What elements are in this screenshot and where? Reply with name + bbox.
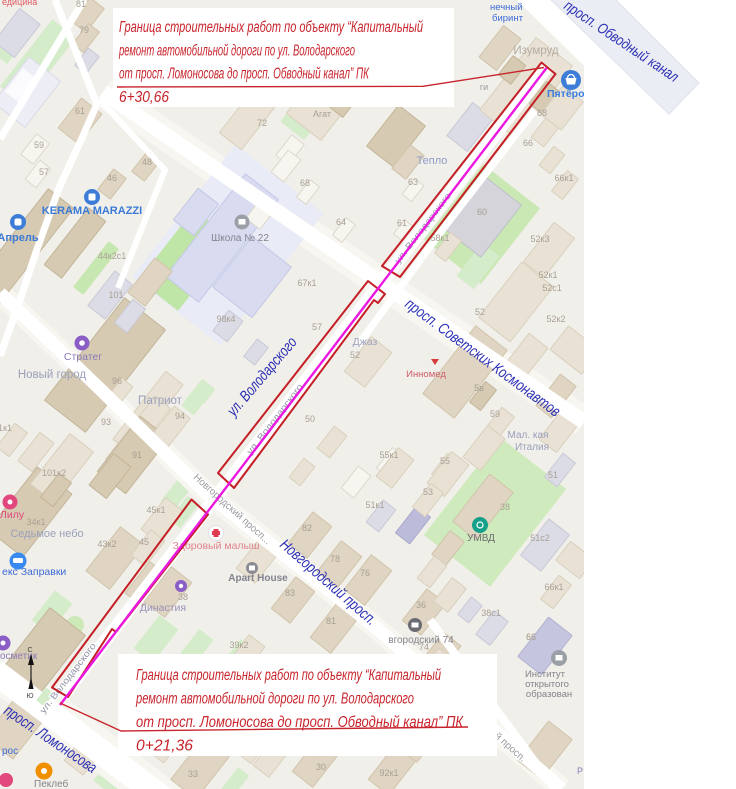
svg-text:44к2с1: 44к2с1 xyxy=(98,251,126,261)
svg-text:Патриот: Патриот xyxy=(138,395,183,407)
svg-text:Пятёроч: Пятёроч xyxy=(547,88,590,100)
svg-text:5в: 5в xyxy=(474,383,484,393)
svg-text:С: С xyxy=(27,647,32,654)
svg-text:1к1: 1к1 xyxy=(0,423,12,433)
svg-text:образован: образован xyxy=(526,689,572,700)
svg-text:30: 30 xyxy=(316,762,326,772)
svg-text:92к1: 92к1 xyxy=(380,768,399,778)
svg-text:вгородский 74: вгородский 74 xyxy=(388,635,454,646)
svg-text:0+21,36: 0+21,36 xyxy=(136,738,193,755)
svg-text:38: 38 xyxy=(500,502,510,512)
svg-text:биринт: биринт xyxy=(492,13,524,24)
svg-text:51: 51 xyxy=(548,470,558,480)
svg-text:101: 101 xyxy=(108,290,123,300)
svg-text:52к2: 52к2 xyxy=(547,314,566,324)
svg-text:98к4: 98к4 xyxy=(217,314,236,324)
svg-text:48: 48 xyxy=(142,157,152,167)
svg-text:60: 60 xyxy=(477,207,487,217)
svg-text:52: 52 xyxy=(475,307,485,317)
svg-text:96: 96 xyxy=(112,376,122,386)
svg-text:Мал. кая: Мал. кая xyxy=(508,430,549,441)
svg-text:Седьмое небо: Седьмое небо xyxy=(10,528,83,540)
svg-text:38: 38 xyxy=(178,592,188,602)
svg-text:63: 63 xyxy=(408,177,418,187)
svg-text:Апрель: Апрель xyxy=(0,232,39,244)
svg-text:ремонт автомобильной дороги по: ремонт автомобильной дороги по ул. Волод… xyxy=(135,691,414,708)
svg-text:45к1: 45к1 xyxy=(147,505,166,515)
svg-text:68: 68 xyxy=(300,178,310,188)
svg-text:66: 66 xyxy=(523,138,533,148)
svg-text:Пеклеб: Пеклеб xyxy=(34,778,69,789)
svg-text:43к2: 43к2 xyxy=(98,539,117,549)
svg-text:57: 57 xyxy=(39,167,49,177)
svg-text:93: 93 xyxy=(101,417,111,427)
svg-text:53: 53 xyxy=(423,487,433,497)
svg-text:61: 61 xyxy=(75,106,85,116)
svg-text:94: 94 xyxy=(175,411,185,421)
svg-text:50: 50 xyxy=(305,414,315,424)
svg-text:Граница строительных работ по: Граница строительных работ по объекту “К… xyxy=(119,19,423,36)
svg-text:Граница строительных работ по: Граница строительных работ по объекту “К… xyxy=(136,667,441,684)
svg-text:Стратег: Стратег xyxy=(64,351,102,363)
svg-text:61: 61 xyxy=(397,218,407,228)
svg-text:Джаз: Джаз xyxy=(353,336,378,348)
svg-text:81: 81 xyxy=(76,0,86,9)
svg-text:79: 79 xyxy=(79,25,89,35)
svg-text:33: 33 xyxy=(188,769,198,779)
svg-text:ги: ги xyxy=(480,82,488,92)
svg-text:55: 55 xyxy=(440,456,450,466)
svg-text:68: 68 xyxy=(537,108,547,118)
svg-text:Изумруд: Изумруд xyxy=(513,45,559,57)
svg-text:82: 82 xyxy=(302,523,312,533)
svg-text:KERAMA MARAZZI: KERAMA MARAZZI xyxy=(42,205,142,217)
svg-text:Инномед: Инномед xyxy=(406,369,446,380)
svg-text:91: 91 xyxy=(132,450,142,460)
svg-text:Новый город: Новый город xyxy=(18,369,87,381)
svg-text:Агат: Агат xyxy=(313,109,331,119)
svg-text:51к1: 51к1 xyxy=(366,500,385,510)
svg-text:83: 83 xyxy=(285,588,295,598)
svg-text:Р: Р xyxy=(577,766,583,776)
svg-text:52с1: 52с1 xyxy=(542,283,562,293)
svg-text:78: 78 xyxy=(330,554,340,564)
svg-text:Лилу: Лилу xyxy=(0,509,25,521)
svg-text:76: 76 xyxy=(360,568,370,578)
svg-text:Тепло: Тепло xyxy=(417,155,448,167)
svg-text:едицина: едицина xyxy=(2,0,37,7)
svg-text:81: 81 xyxy=(326,616,336,626)
svg-text:101к2: 101к2 xyxy=(42,468,66,478)
svg-text:36: 36 xyxy=(416,600,426,610)
svg-text:72: 72 xyxy=(257,118,267,128)
svg-text:64: 64 xyxy=(336,217,346,227)
svg-text:59: 59 xyxy=(34,140,44,150)
svg-text:рос: рос xyxy=(2,746,18,757)
svg-text:нечный: нечный xyxy=(490,2,523,13)
svg-text:Ю: Ю xyxy=(26,693,33,700)
svg-text:51с2: 51с2 xyxy=(530,533,550,543)
svg-text:52: 52 xyxy=(350,350,360,360)
svg-text:Школа № 22: Школа № 22 xyxy=(211,233,269,244)
svg-text:УМВД: УМВД xyxy=(467,533,495,544)
svg-text:6+30,66: 6+30,66 xyxy=(119,89,169,106)
svg-text:59: 59 xyxy=(490,409,500,419)
svg-text:Apart House: Apart House xyxy=(228,573,288,584)
svg-text:38с1: 38с1 xyxy=(481,608,501,618)
svg-text:52к3: 52к3 xyxy=(531,234,550,244)
svg-text:66: 66 xyxy=(526,632,536,642)
svg-text:Италия: Италия xyxy=(515,442,549,453)
svg-text:от просп. Ломоносова до просп: от просп. Ломоносова до просп. Обводный … xyxy=(119,66,370,83)
svg-text:66к1: 66к1 xyxy=(555,173,574,183)
svg-text:екс Заправки: екс Заправки xyxy=(2,566,66,578)
svg-text:34к1: 34к1 xyxy=(27,517,46,527)
svg-text:66к1: 66к1 xyxy=(545,582,564,592)
svg-text:67к1: 67к1 xyxy=(298,278,317,288)
svg-text:46: 46 xyxy=(107,173,117,183)
svg-text:39к2: 39к2 xyxy=(230,640,249,650)
svg-text:Династия: Династия xyxy=(140,602,186,614)
svg-text:57: 57 xyxy=(312,322,322,332)
svg-text:45: 45 xyxy=(139,537,149,547)
svg-text:ремонт автомобильной дороги по: ремонт автомобильной дороги по ул. Волод… xyxy=(118,42,355,59)
svg-text:52к1: 52к1 xyxy=(539,270,558,280)
svg-text:55к1: 55к1 xyxy=(380,450,399,460)
